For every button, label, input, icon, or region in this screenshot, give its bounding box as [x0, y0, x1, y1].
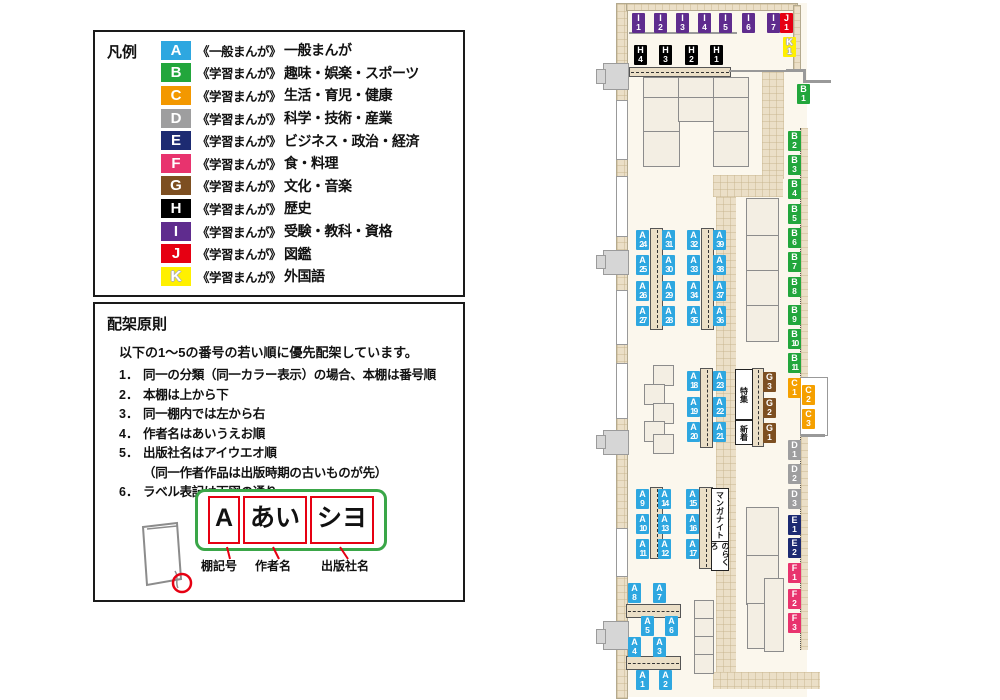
legend-category-label: 文化・音楽: [284, 176, 352, 196]
shelf-label-number: 3: [657, 647, 662, 656]
shelf-label-c2: C 2: [802, 385, 815, 405]
legend-item-d: D 《学習まんが》 科学・技術・産業: [161, 107, 419, 130]
category-color-chip: K: [161, 267, 191, 286]
shelf-label-b2: B 2: [788, 131, 801, 151]
shelf-label-a2: A 2: [659, 670, 672, 690]
door-icon: [603, 63, 629, 90]
table-shelf: [713, 97, 749, 133]
shelf-label-number: 33: [690, 265, 696, 274]
shelf-label-j1: J 1: [780, 13, 793, 33]
table-shelf: [643, 131, 680, 167]
table-shelf: [764, 578, 784, 652]
shelf-label-number: 1: [636, 23, 641, 32]
category-color-chip: E: [161, 131, 191, 150]
category-color-chip: G: [161, 176, 191, 195]
legend-series-label: 《学習まんが》: [197, 222, 281, 241]
shelf-label-number: 2: [767, 408, 772, 417]
legend-category-label: 受験・教科・資格: [284, 221, 392, 241]
legend-item-b: B 《学習まんが》 趣味・娯楽・スポーツ: [161, 62, 419, 85]
shelf-label-a39: A 39: [713, 230, 726, 250]
shelf-label-number: 12: [661, 549, 667, 558]
display-table: [694, 654, 714, 674]
shelf-label-a29: A 29: [662, 281, 675, 301]
shelf-label-number: 3: [792, 165, 797, 174]
shelf-label-i2: I 2: [654, 13, 667, 33]
shelf-label-number: 4: [792, 189, 797, 198]
shelf-label-number: 34: [690, 291, 696, 300]
shelf-label-a35: A 35: [687, 306, 700, 326]
shelf-label-number: 19: [690, 407, 696, 416]
shelf-label-a20: A 20: [687, 422, 700, 442]
table-shelf: [713, 77, 749, 99]
shelf-label-number: 10: [791, 339, 797, 348]
shelf-label-number: 5: [792, 214, 797, 223]
shelf-label-a31: A 31: [662, 230, 675, 250]
display-table: [653, 434, 674, 454]
shelf-label-number: 17: [689, 549, 695, 558]
shelf-label-d2: D 2: [788, 464, 801, 484]
shelf-label-a30: A 30: [662, 255, 675, 275]
shelf-label-a14: A 14: [658, 489, 671, 509]
door-icon: [603, 430, 629, 455]
legend-item-g: G 《学習まんが》 文化・音楽: [161, 175, 419, 198]
shelf-label-a38: A 38: [713, 255, 726, 275]
shelf-label-number: 13: [661, 524, 667, 533]
shelf-label-number: 7: [771, 23, 776, 32]
shelf-label-b8: B 8: [788, 277, 801, 297]
shelf-label-a37: A 37: [713, 281, 726, 301]
shelf-map-poster: { "legend": { "title": "凡例", "items": [ …: [0, 0, 1000, 700]
shelf-label-number: 2: [663, 680, 668, 689]
shelf-label-b1: B 1: [797, 84, 810, 104]
shelf-label-a24: A 24: [636, 230, 649, 250]
shelf-label-number: 29: [665, 291, 671, 300]
shelf-label-a23: A 23: [713, 371, 726, 391]
legend-series-label: 《学習まんが》: [197, 63, 281, 82]
shelf-label-a22: A 22: [713, 397, 726, 417]
legend-item-f: F 《学習まんが》 食・料理: [161, 152, 419, 175]
map-sign: マンガナイト: [711, 488, 729, 542]
shelf-label-number: 2: [806, 395, 811, 404]
shelf-label-number: 5: [723, 23, 728, 32]
wall-corner-line: [805, 80, 831, 83]
shelf-label-number: 11: [640, 549, 646, 558]
shelf-label-i4: I 4: [698, 13, 711, 33]
legend-series-label: 《学習まんが》: [197, 176, 281, 195]
shelf-label-a19: A 19: [687, 397, 700, 417]
shelf-label-number: 38: [716, 265, 722, 274]
category-color-chip: A: [161, 41, 191, 60]
shelf-label-number: 6: [669, 626, 674, 635]
legend-category-label: 科学・技術・産業: [284, 108, 392, 128]
shelf-label-number: 6: [746, 23, 751, 32]
shelf-label-number: 2: [792, 599, 797, 608]
shelf-label-f2: F 2: [788, 589, 801, 609]
category-color-chip: D: [161, 109, 191, 128]
shelf-label-b9: B 9: [788, 305, 801, 325]
category-color-chip: B: [161, 63, 191, 82]
shelf-label-a36: A 36: [713, 306, 726, 326]
shelf-label-number: 1: [787, 47, 792, 56]
shelf-label-number: 3: [806, 419, 811, 428]
map-sign: のらくろ: [711, 541, 729, 571]
shelf-label-number: 3: [792, 623, 797, 632]
shelf-label-a13: A 13: [658, 514, 671, 534]
category-color-chip: H: [161, 199, 191, 218]
category-color-chip: I: [161, 222, 191, 241]
legend-rows: A 《一般まんが》 一般まんが B 《学習まんが》 趣味・娯楽・スポーツ C 《…: [161, 39, 419, 288]
shelf-label-i3: I 3: [676, 13, 689, 33]
shelf-label-a32: A 32: [687, 230, 700, 250]
legend-item-c: C 《学習まんが》 生活・育児・健康: [161, 84, 419, 107]
shelf-label-h4: H 4: [634, 45, 647, 65]
shelf-label-number: 2: [792, 474, 797, 483]
table-shelf: [746, 507, 779, 557]
shelf-label-number: 11: [792, 363, 798, 372]
shelf-label-number: 10: [639, 524, 645, 533]
shelf-label-f1: F 1: [788, 563, 801, 583]
legend-series-label: 《学習まんが》: [197, 86, 281, 105]
shelf-label-number: 2: [689, 55, 694, 64]
table-shelf: [678, 97, 715, 122]
shelf-label-number: 2: [792, 548, 797, 557]
shelf-label-number: 3: [663, 55, 668, 64]
legend-category-label: 図鑑: [284, 244, 311, 264]
shelf-label-number: 39: [716, 240, 722, 249]
legend-series-label: 《一般まんが》: [197, 41, 281, 60]
shelf-label-b3: B 3: [788, 155, 801, 175]
shelf-label-number: 23: [716, 381, 722, 390]
label-diagram-captions: 棚記号作者名出版社名: [95, 557, 463, 577]
table-shelf: [746, 270, 779, 307]
shelf-label-b11: B 11: [788, 353, 801, 373]
legend-series-label: 《学習まんが》: [197, 267, 281, 286]
shelf-label-number: 18: [690, 381, 696, 390]
shelf-line: [801, 434, 825, 437]
shelf-label-number: 2: [658, 23, 663, 32]
shelf-label-b4: B 4: [788, 179, 801, 199]
shelf-label-g3: G 3: [763, 372, 776, 392]
legend-item-h: H 《学習まんが》 歴史: [161, 197, 419, 220]
legend-category-label: 食・料理: [284, 153, 338, 173]
shelf-label-number: 3: [767, 382, 772, 391]
legend-item-a: A 《一般まんが》 一般まんが: [161, 39, 419, 62]
shelf-label-h3: H 3: [659, 45, 672, 65]
shelf-label-number: 32: [690, 240, 696, 249]
shelf-label-number: 28: [665, 316, 671, 325]
wall-top: [626, 3, 798, 11]
shelf-label-a7: A 7: [653, 583, 666, 603]
legend-item-e: E 《学習まんが》 ビジネス・政治・経済: [161, 129, 419, 152]
walkway: [713, 175, 783, 197]
shelf-label-number: 3: [680, 23, 685, 32]
shelf-label-c1: C 1: [788, 378, 801, 398]
wall-niche: [616, 176, 628, 237]
door-icon: [603, 250, 629, 275]
shelf-label-number: 6: [792, 238, 797, 247]
shelf-label-number: 26: [639, 291, 645, 300]
display-table: [653, 365, 674, 386]
legend-series-label: 《学習まんが》: [197, 131, 281, 150]
table-shelf: [746, 305, 779, 342]
shelf-label-number: 8: [632, 593, 637, 602]
shelf-label-number: 1: [792, 525, 797, 534]
shelf-label-i6: I 6: [742, 13, 755, 33]
shelf-label-a4: A 4: [628, 637, 641, 657]
shelf-line: [729, 70, 787, 72]
shelf-label-number: 21: [716, 432, 722, 441]
shelf-label-a33: A 33: [687, 255, 700, 275]
legend-category-label: 外国語: [284, 266, 325, 286]
table-shelf: [713, 131, 749, 167]
shelf-label-number: 7: [792, 262, 797, 271]
shelf-label-a27: A 27: [636, 306, 649, 326]
shelf-label-e1: E 1: [788, 515, 801, 535]
shelf-label-a1: A 1: [636, 670, 649, 690]
legend-item-i: I 《学習まんが》 受験・教科・資格: [161, 220, 419, 243]
label-diagram-caption: 棚記号: [201, 557, 237, 574]
shelf-label-number: 20: [690, 432, 696, 441]
shelf-label-b6: B 6: [788, 228, 801, 248]
shelf-label-a34: A 34: [687, 281, 700, 301]
shelf-label-number: 25: [639, 265, 645, 274]
shelf-label-number: 9: [792, 315, 797, 324]
legend-series-label: 《学習まんが》: [197, 199, 281, 218]
map-sign: 特集: [735, 369, 753, 420]
legend-category-label: 趣味・娯楽・スポーツ: [284, 63, 419, 83]
shelf-label-i1: I 1: [632, 13, 645, 33]
shelf-label-a18: A 18: [687, 371, 700, 391]
shelf-label-a6: A 6: [665, 616, 678, 636]
shelf-label-f3: F 3: [788, 613, 801, 633]
label-diagram-caption: 作者名: [255, 557, 291, 574]
shelf-label-a25: A 25: [636, 255, 649, 275]
shelf-label-number: 4: [702, 23, 707, 32]
shelf-label-number: 4: [632, 647, 637, 656]
shelf-label-a15: A 15: [686, 489, 699, 509]
shelf-label-a16: A 16: [686, 514, 699, 534]
shelf-label-g2: G 2: [763, 398, 776, 418]
door-icon: [596, 629, 606, 644]
door-icon: [603, 621, 629, 650]
walkway: [762, 72, 784, 179]
shelf-label-a11: A 11: [636, 539, 649, 559]
shelf-label-number: 16: [689, 524, 695, 533]
legend-category-label: 一般まんが: [284, 40, 352, 60]
category-color-chip: F: [161, 154, 191, 173]
bookshelf-strip: [700, 368, 713, 448]
legend-panel: 凡例 A 《一般まんが》 一般まんが B 《学習まんが》 趣味・娯楽・スポーツ …: [93, 30, 465, 297]
walkway: [713, 672, 820, 689]
wall-niche: [616, 100, 628, 160]
shelf-label-b10: B 10: [788, 329, 801, 349]
shelf-label-number: 7: [657, 593, 662, 602]
shelf-label-a21: A 21: [713, 422, 726, 442]
shelf-label-number: 1: [792, 573, 797, 582]
shelf-label-c3: C 3: [802, 409, 815, 429]
shelf-label-number: 1: [792, 388, 797, 397]
shelf-label-number: 15: [689, 499, 695, 508]
shelf-label-e2: E 2: [788, 538, 801, 558]
shelf-label-number: 14: [661, 499, 667, 508]
shelf-label-number: 36: [716, 316, 722, 325]
shelf-label-number: 24: [639, 240, 645, 249]
display-table: [644, 384, 665, 405]
legend-category-label: 生活・育児・健康: [284, 85, 392, 105]
shelf-label-a3: A 3: [653, 637, 666, 657]
shelf-label-number: 3: [792, 499, 797, 508]
display-table: [694, 636, 714, 656]
legend-title: 凡例: [107, 41, 137, 62]
display-table: [694, 600, 714, 620]
shelf-label-a10: A 10: [636, 514, 649, 534]
door-icon: [596, 255, 606, 269]
shelf-label-number: 8: [792, 287, 797, 296]
shelf-label-number: 37: [716, 291, 722, 300]
shelf-label-b5: B 5: [788, 204, 801, 224]
shelf-label-number: 27: [639, 316, 645, 325]
shelf-label-number: 1: [784, 23, 789, 32]
category-color-chip: J: [161, 244, 191, 263]
shelf-label-number: 5: [645, 626, 650, 635]
shelf-label-g1: G 1: [763, 423, 776, 443]
wall-niche: [616, 363, 628, 419]
shelf-label-a17: A 17: [686, 539, 699, 559]
shelf-label-number: 22: [716, 407, 722, 416]
legend-item-j: J 《学習まんが》 図鑑: [161, 242, 419, 265]
shelf-label-a28: A 28: [662, 306, 675, 326]
shelf-label-number: 1: [767, 433, 772, 442]
display-table: [694, 618, 714, 638]
shelf-label-i5: I 5: [719, 13, 732, 33]
shelf-label-d1: D 1: [788, 440, 801, 460]
shelf-label-h1: H 1: [710, 45, 723, 65]
shelf-label-h2: H 2: [685, 45, 698, 65]
table-shelf: [643, 97, 680, 133]
bookshelf-strip: [626, 656, 681, 670]
label-diagram-caption: 出版社名: [321, 557, 369, 574]
category-color-chip: C: [161, 86, 191, 105]
legend-series-label: 《学習まんが》: [197, 244, 281, 263]
shelf-label-i7: I 7: [767, 13, 780, 33]
table-shelf: [643, 77, 680, 99]
bookshelf-strip: [629, 67, 731, 77]
shelf-label-a5: A 5: [641, 616, 654, 636]
door-icon: [596, 435, 606, 449]
shelf-label-a9: A 9: [636, 489, 649, 509]
diagram-leader-lines: [95, 304, 463, 600]
wall-niche: [616, 528, 628, 577]
shelf-label-a8: A 8: [628, 583, 641, 603]
shelf-label-number: 1: [714, 55, 719, 64]
shelf-label-number: 4: [638, 55, 643, 64]
wall-niche: [616, 290, 628, 345]
shelf-label-number: 1: [801, 94, 806, 103]
legend-series-label: 《学習まんが》: [197, 154, 281, 173]
map-sign: 新着: [735, 420, 753, 445]
legend-series-label: 《学習まんが》: [197, 109, 281, 128]
shelf-label-number: 2: [792, 141, 797, 150]
door-icon: [596, 69, 606, 84]
table-shelf: [746, 198, 779, 237]
table-shelf: [746, 235, 779, 272]
shelf-label-b7: B 7: [788, 252, 801, 272]
shelf-label-number: 30: [665, 265, 671, 274]
shelving-rules-panel: 配架原則 以下の1～5の番号の若い順に優先配架しています。 1． 同一の分類（同…: [93, 302, 465, 602]
legend-item-k: K 《学習まんが》 外国語: [161, 265, 419, 288]
table-shelf: [678, 77, 715, 99]
shelf-label-number: 1: [792, 450, 797, 459]
shelf-label-a12: A 12: [658, 539, 671, 559]
shelf-label-k1: K 1: [783, 37, 796, 57]
shelf-label-number: 9: [640, 499, 645, 508]
shelf-label-a26: A 26: [636, 281, 649, 301]
shelf-label-d3: D 3: [788, 489, 801, 509]
shelf-label-number: 1: [640, 680, 645, 689]
shelf-label-number: 31: [665, 240, 671, 249]
legend-category-label: 歴史: [284, 198, 311, 218]
legend-category-label: ビジネス・政治・経済: [284, 131, 419, 151]
shelf-label-number: 35: [690, 316, 696, 325]
